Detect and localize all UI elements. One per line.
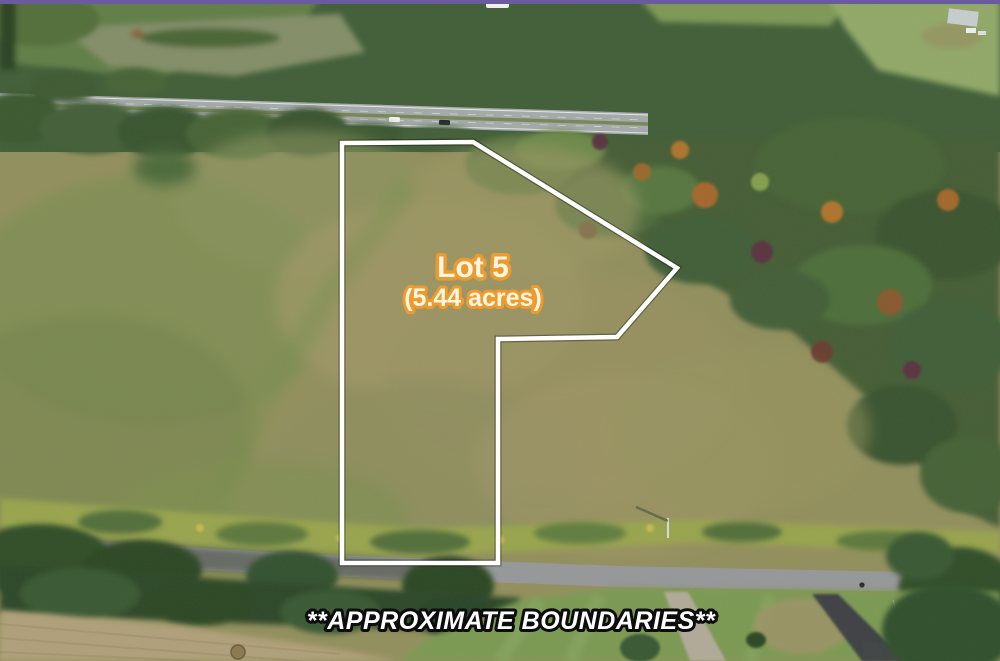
lot-name-label: Lot 5 (437, 251, 509, 284)
approximate-boundaries-disclaimer: **APPROXIMATE BOUNDARIES** (307, 607, 716, 635)
lot-area-label: (5.44 acres) (404, 284, 542, 312)
aerial-photo-canvas: Lot 5 (5.44 acres) **APPROXIMATE BOUNDAR… (0, 0, 1000, 661)
top-edge-strip (0, 0, 1000, 4)
aerial-photo: Lot 5 (5.44 acres) **APPROXIMATE BOUNDAR… (0, 0, 1000, 661)
